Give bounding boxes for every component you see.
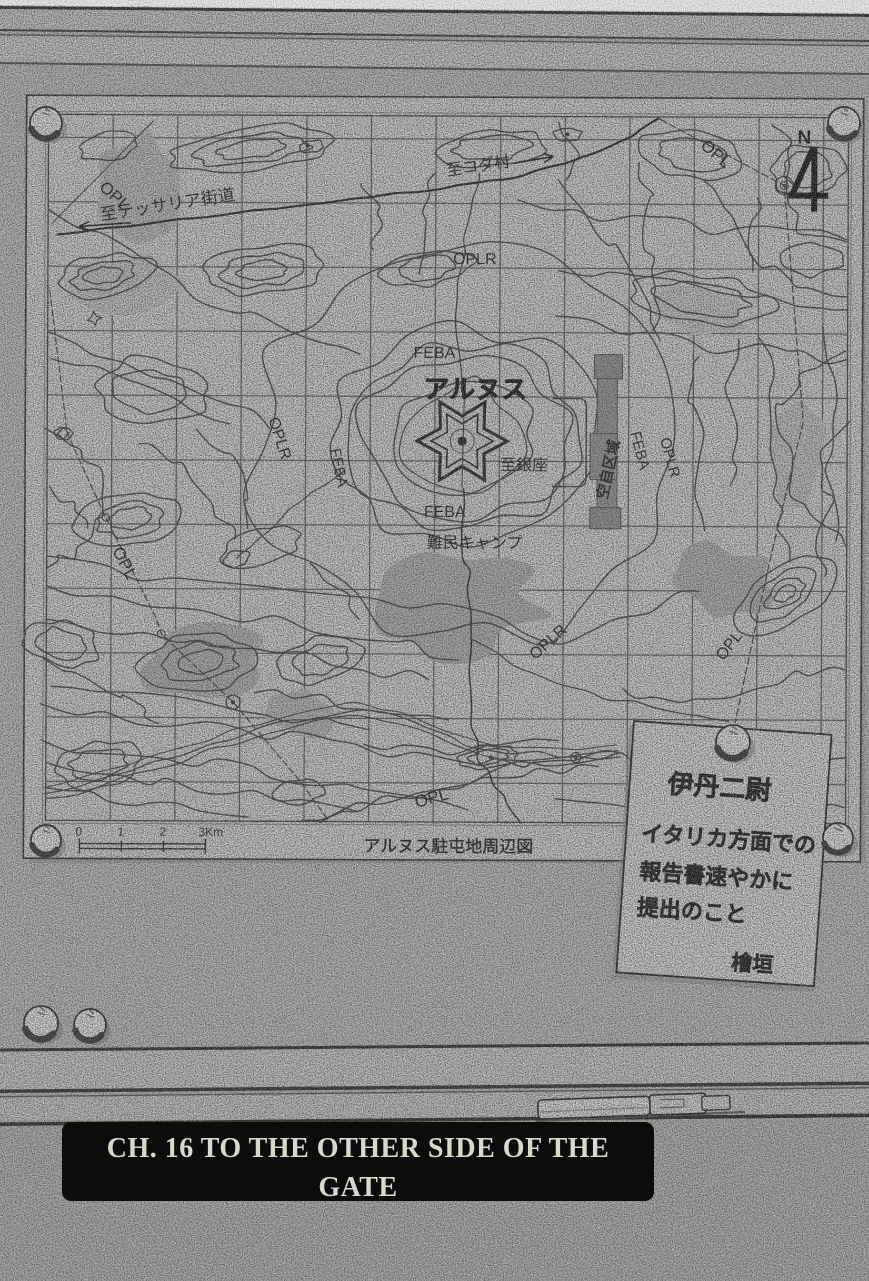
svg-text:CH. 16 TO THE OTHER SIDE OF TH: CH. 16 TO THE OTHER SIDE OF THE (107, 1133, 610, 1164)
svg-text:GATE: GATE (318, 1172, 397, 1203)
